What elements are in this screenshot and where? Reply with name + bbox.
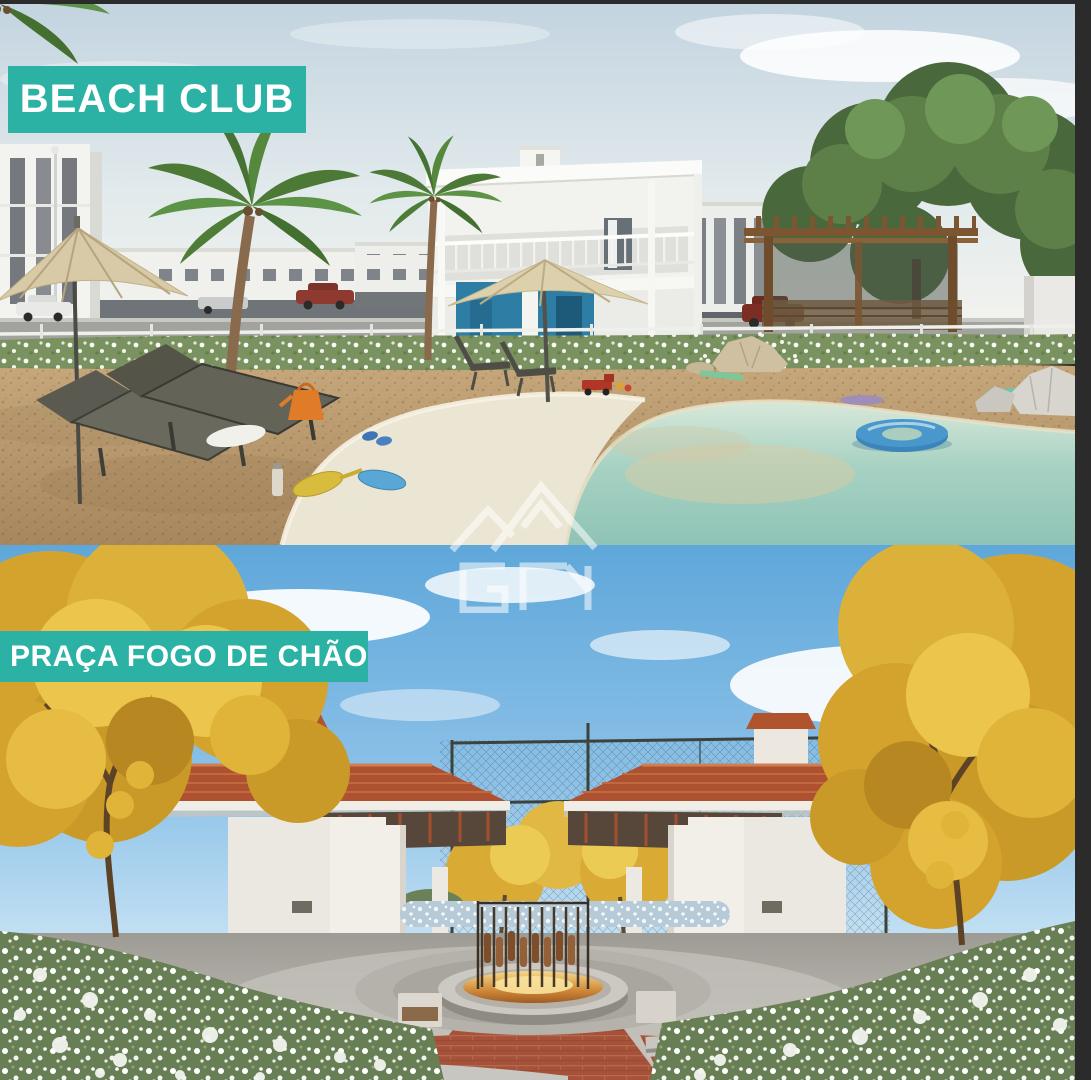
beach-club-banner-label: BEACH CLUB bbox=[20, 77, 294, 122]
marketing-collage: BEACH CLUB PRAÇA FOGO DE CHÃO bbox=[0, 0, 1091, 1080]
pergola bbox=[744, 216, 978, 332]
praca-banner-label: PRAÇA FOGO DE CHÃO bbox=[10, 640, 368, 674]
gm-monogram-watermark-icon bbox=[447, 475, 623, 613]
pool-ring-float bbox=[852, 419, 952, 452]
praca-fogo-de-chao-photo bbox=[0, 545, 1075, 1080]
praca-banner: PRAÇA FOGO DE CHÃO bbox=[0, 631, 368, 682]
beach-club-banner: BEACH CLUB bbox=[8, 66, 306, 133]
